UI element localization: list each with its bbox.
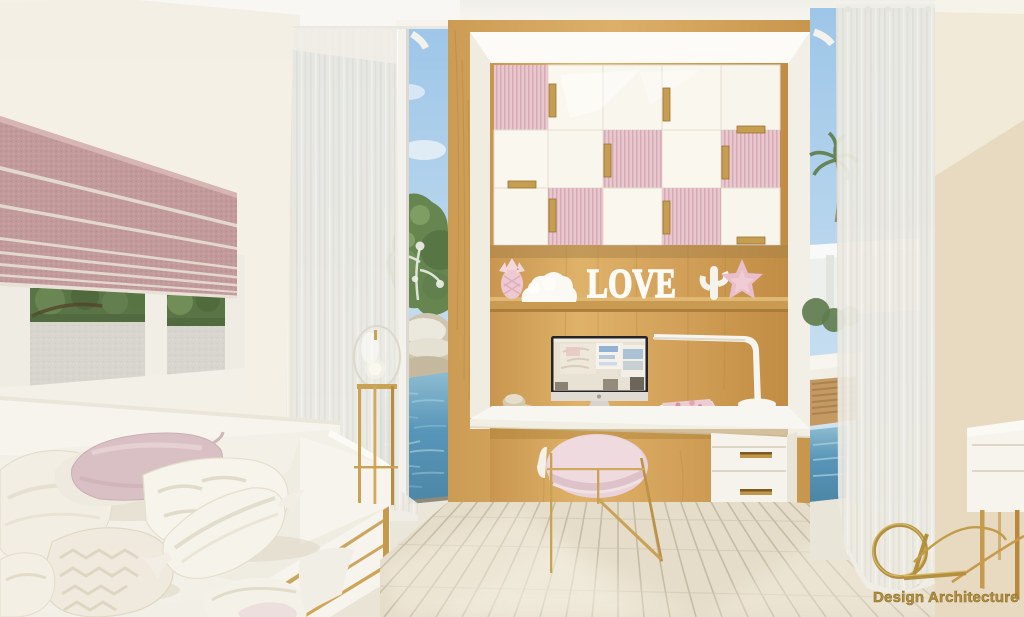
svg-text:Design Architecture: Design Architecture [873, 589, 1019, 606]
svg-text:LOVE: LOVE [587, 260, 676, 306]
